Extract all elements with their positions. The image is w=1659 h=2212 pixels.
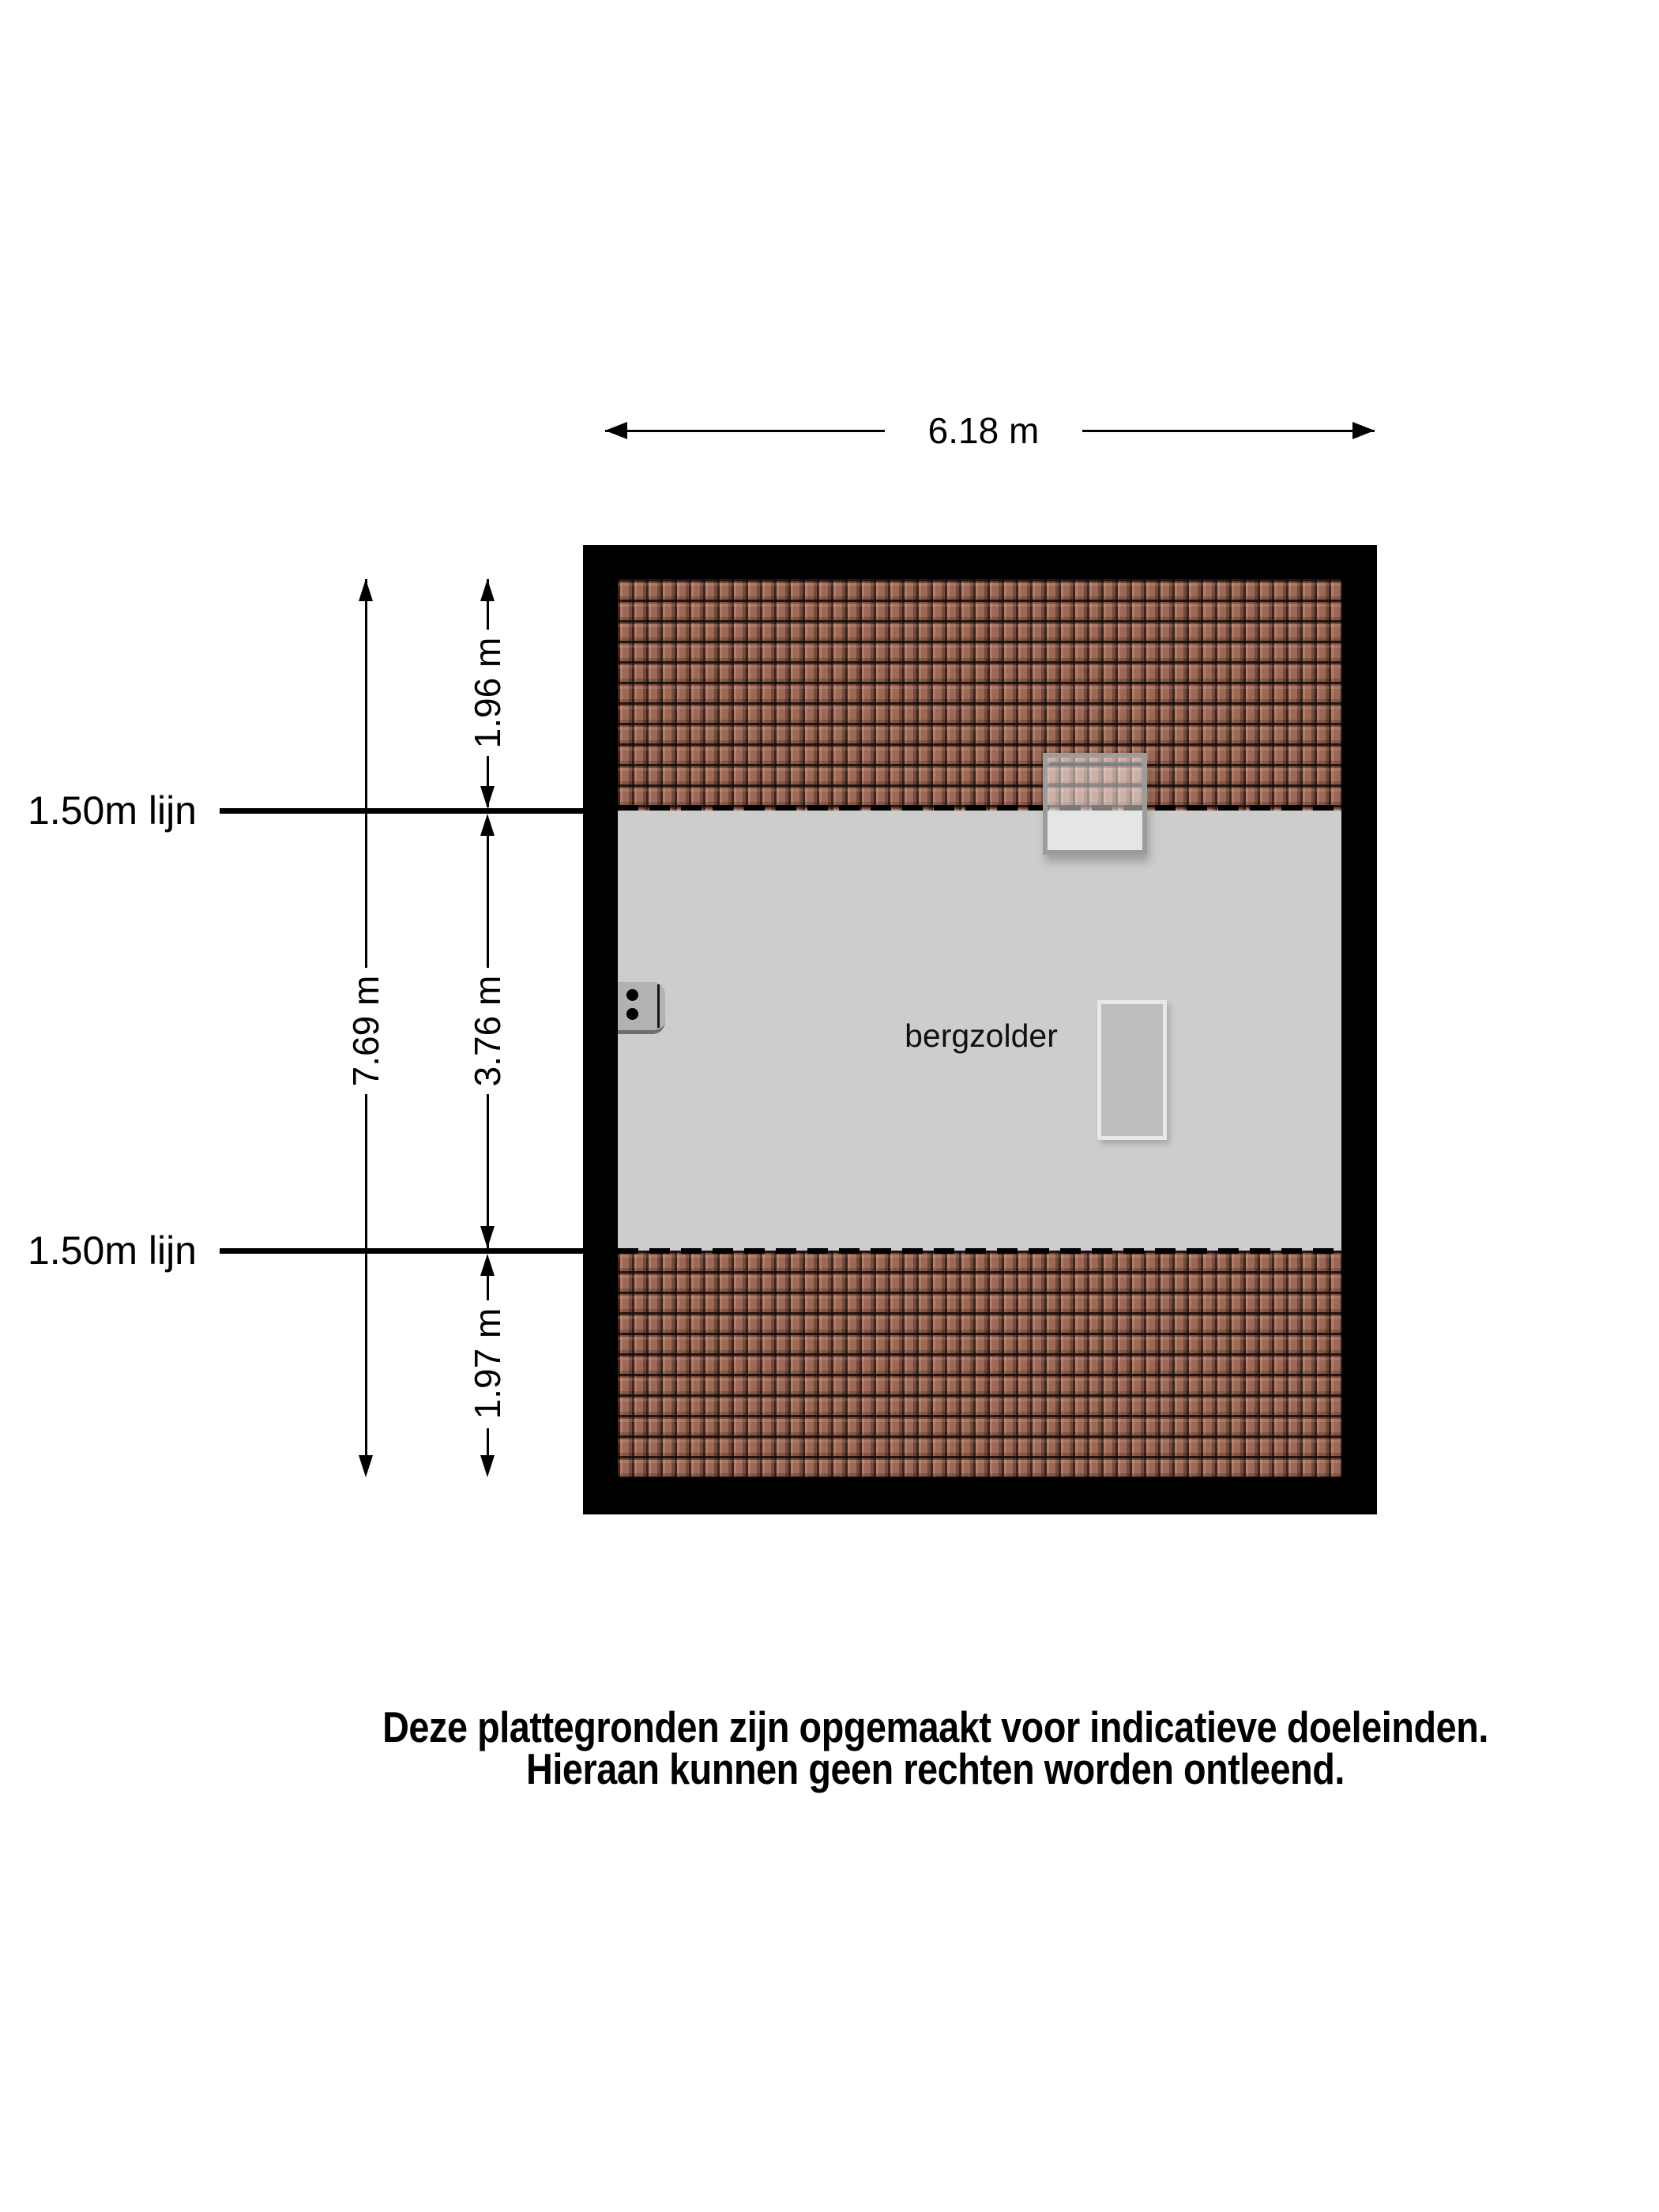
arrow-left-icon (605, 422, 627, 439)
arrow-down-icon (359, 1455, 373, 1477)
skylight-glazing-line (1049, 783, 1141, 784)
arrow-up-icon (480, 1254, 495, 1276)
dimension-line (487, 1276, 489, 1302)
ventilation-unit (618, 982, 665, 1034)
roof-tiles-top (618, 579, 1341, 811)
disclaimer-line-1: Deze plattegronden zijn opgemaakt voor i… (264, 1706, 1607, 1748)
reference-line-label-bottom: 1.50m lijn (28, 1228, 197, 1273)
reference-line-label-top: 1.50m lijn (28, 788, 197, 833)
vent-dot-icon (626, 1008, 638, 1020)
total-height-label: 7.69 m (344, 968, 388, 1094)
reference-line-bottom (220, 1248, 585, 1254)
floorplan-page: 6.18 m bergzolder 1.50m lijn 1.50m lijn (0, 0, 1659, 2212)
dimension-line (365, 579, 367, 973)
dimension-line (487, 1089, 489, 1248)
skylight-window (1043, 753, 1147, 855)
arrow-down-icon (480, 1226, 495, 1248)
section-top-label: 1.96 m (465, 630, 510, 756)
section-middle-label: 3.76 m (465, 968, 510, 1094)
skylight-sash-bar (1049, 762, 1141, 766)
arrow-up-icon (359, 579, 373, 601)
knee-wall-dashed-line-top (618, 805, 1341, 811)
room-label: bergzolder (885, 1018, 1078, 1053)
dimension-line (365, 1089, 367, 1455)
attic-room: bergzolder (618, 579, 1341, 1477)
vent-divider (657, 984, 660, 1028)
vent-dot-icon (626, 989, 638, 1001)
dimension-line (487, 836, 489, 973)
arrow-down-icon (480, 1455, 495, 1477)
floorplan-outline: bergzolder (583, 545, 1377, 1514)
arrow-down-icon (480, 786, 495, 808)
knee-wall-dashed-line-bottom (618, 1248, 1341, 1254)
arrow-up-icon (480, 579, 495, 601)
total-width-label: 6.18 m (885, 407, 1082, 454)
stair-opening (1097, 1000, 1167, 1140)
dimension-line (487, 1428, 489, 1455)
arrow-right-icon (1352, 422, 1375, 439)
section-bottom-label: 1.97 m (465, 1300, 510, 1427)
arrow-up-icon (480, 814, 495, 836)
disclaimer-line-2: Hieraan kunnen geen rechten worden ontle… (264, 1748, 1607, 1790)
roof-tiles-bottom (618, 1251, 1341, 1477)
reference-line-top (220, 808, 585, 814)
disclaimer: Deze plattegronden zijn opgemaakt voor i… (264, 1706, 1607, 1790)
